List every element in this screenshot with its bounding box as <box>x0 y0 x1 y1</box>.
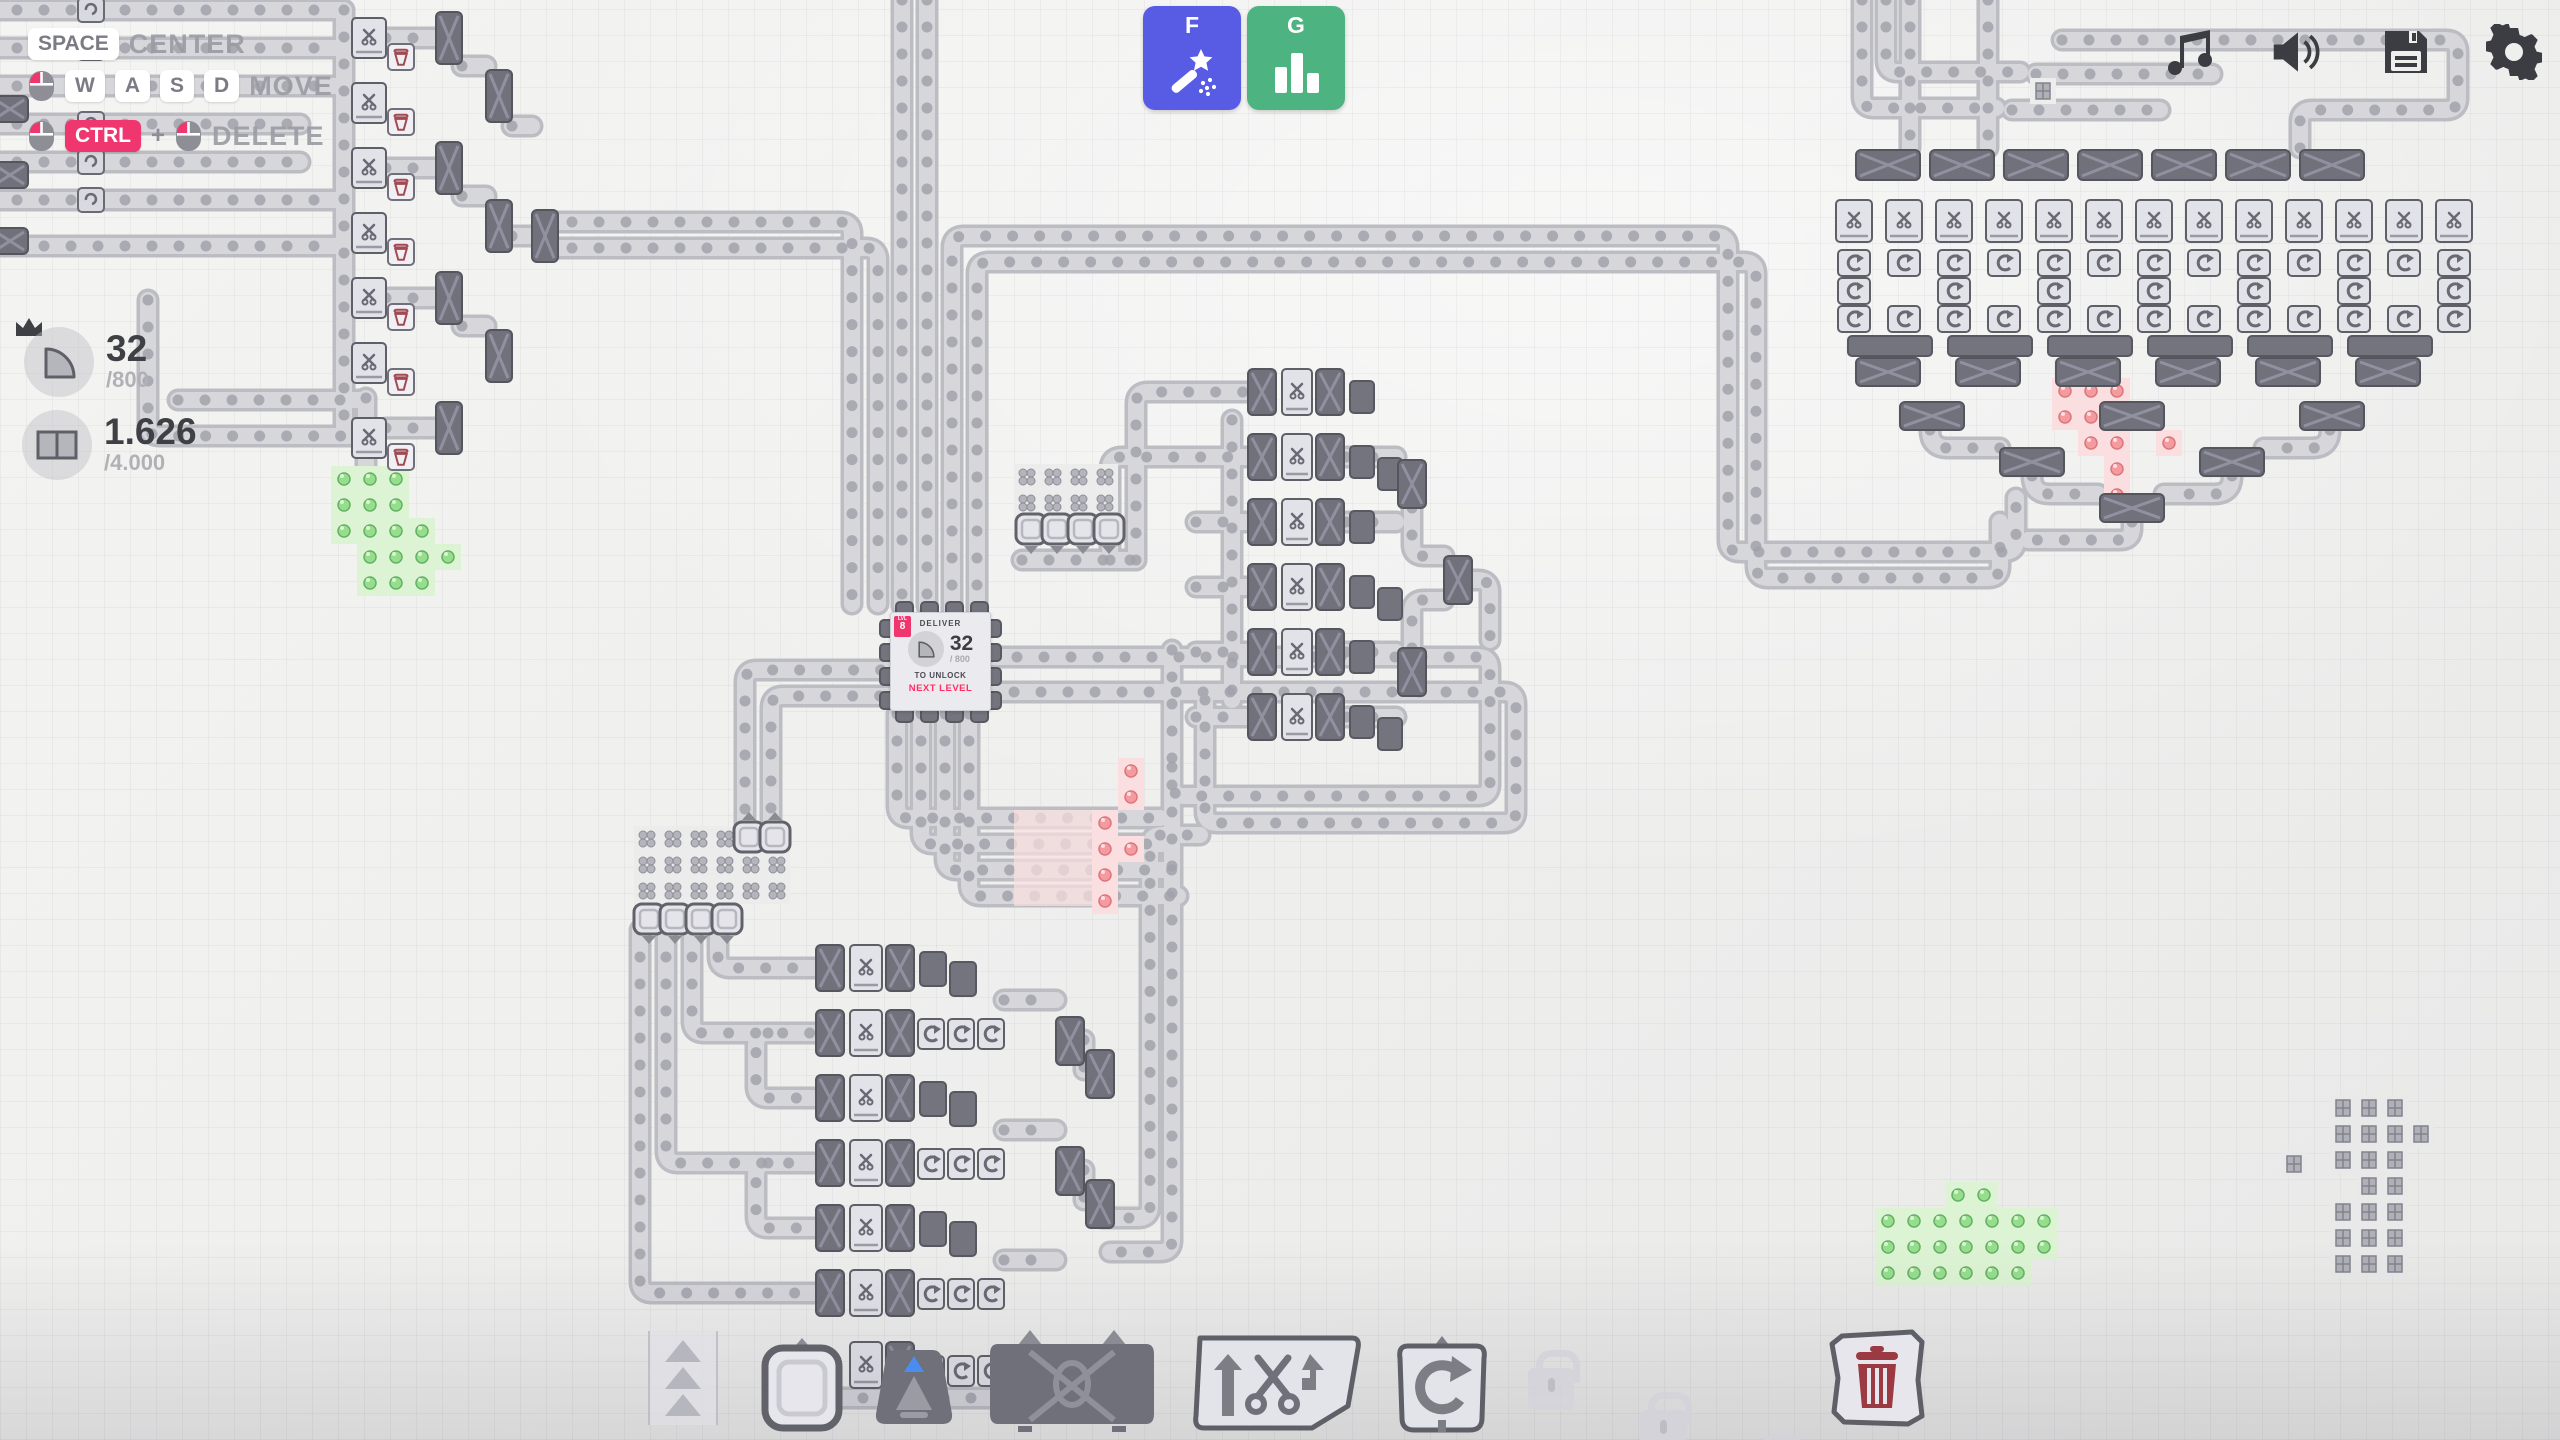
goal-target: /800 <box>106 367 149 393</box>
toolbar-item-extractor[interactable] <box>757 1336 847 1437</box>
space-key: SPACE <box>28 28 119 60</box>
goal-amount: 1.626 <box>104 414 197 450</box>
left-mouse-icon <box>28 70 55 102</box>
goal-amount: 32 <box>106 331 149 367</box>
center-label: CENTER <box>129 29 246 60</box>
delete-label: DELETE <box>212 121 325 152</box>
left-mouse-icon <box>28 120 55 152</box>
belt-arrow-icon <box>663 1392 703 1418</box>
tunnel-icon <box>874 1348 954 1426</box>
cutter-icon <box>1192 1332 1362 1432</box>
hub-target: / 800 <box>950 654 973 664</box>
w-key: W <box>65 70 105 102</box>
hotkey-letter: F <box>1185 12 1199 39</box>
hotkey-letter: G <box>1287 12 1305 39</box>
music-icon[interactable] <box>2162 22 2218 82</box>
hint-delete: CTRL + DELETE <box>28 120 325 152</box>
level-badge: LVL8 <box>894 616 911 637</box>
unlock-label: TO UNLOCK <box>891 671 990 680</box>
belt-arrow-icon <box>663 1365 703 1391</box>
double-rect-shape-icon <box>22 410 92 480</box>
extractor-icon <box>757 1336 847 1432</box>
stats-hotkey-button[interactable]: G <box>1247 6 1345 110</box>
wand-hotkey-button[interactable]: F <box>1143 6 1241 110</box>
a-key: A <box>115 70 150 102</box>
quarter-shape-icon <box>24 327 94 397</box>
toolbar-item-balancer[interactable] <box>988 1330 1156 1439</box>
d-key: D <box>204 70 239 102</box>
toolbar-item-belt[interactable] <box>648 1331 718 1425</box>
hub-amount: 32 <box>950 634 973 654</box>
hint-center: SPACE CENTER <box>28 28 246 60</box>
goal-target: /4.000 <box>104 450 197 476</box>
toolbar-item-rotator[interactable] <box>1396 1334 1488 1439</box>
rotator-icon <box>1396 1334 1488 1434</box>
ctrl-key: CTRL <box>65 120 141 152</box>
hub-building[interactable]: LVL8 DELIVER 32 / 800 TO UNLOCK NEXT LEV… <box>890 612 991 711</box>
left-mouse-icon <box>175 120 202 152</box>
balancer-icon <box>988 1330 1156 1434</box>
toolbar-item-locked <box>1528 1368 1574 1410</box>
toolbar-item-tunnel[interactable] <box>874 1348 954 1431</box>
toolbar-item-trash[interactable] <box>1828 1328 1926 1433</box>
s-key: S <box>160 70 194 102</box>
hint-move: W A S D MOVE <box>28 70 333 102</box>
goal-quarter: 32 /800 <box>24 327 149 397</box>
volume-icon[interactable] <box>2270 22 2326 82</box>
move-label: MOVE <box>249 71 333 102</box>
plus-sign: + <box>151 122 165 150</box>
magic-wand-icon <box>1163 43 1221 101</box>
system-menu <box>2162 22 2542 82</box>
settings-gear-icon[interactable] <box>2486 22 2542 82</box>
bar-chart-icon <box>1267 43 1325 101</box>
save-icon[interactable] <box>2378 22 2434 82</box>
trash-icon <box>1828 1328 1926 1428</box>
next-level-label: NEXT LEVEL <box>891 683 990 694</box>
quarter-shape-icon <box>908 631 944 667</box>
factory-world <box>0 0 2560 1440</box>
goal-rects: 1.626 /4.000 <box>22 410 197 480</box>
toolbar-item-cutter[interactable] <box>1192 1332 1362 1437</box>
belt-arrow-icon <box>663 1338 703 1364</box>
game-viewport: SPACE CENTER W A S D MOVE CTRL + DELETE … <box>0 0 2560 1440</box>
toolbar-item-locked <box>1640 1410 1686 1440</box>
